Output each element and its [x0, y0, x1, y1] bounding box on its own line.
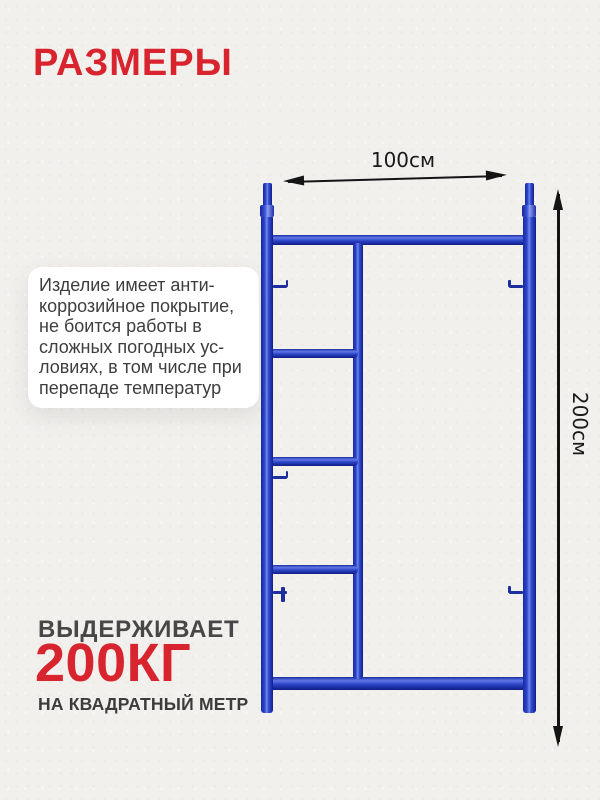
capacity-value: 200КГ	[35, 634, 191, 692]
frame-rung	[270, 565, 358, 574]
description-text: Изделие имеет анти- коррозийное покрытие…	[39, 275, 255, 398]
frame-hook	[273, 471, 289, 480]
frame-hook	[273, 280, 289, 289]
description-line: ловиях, в том числе при	[39, 357, 255, 378]
height-dimension-label: 200см	[572, 374, 592, 474]
description-line: сложных погодных ус-	[39, 337, 255, 358]
width-arrow-icon	[283, 166, 507, 191]
description-line: перепаде температур	[39, 378, 255, 399]
frame-left-post	[261, 215, 273, 713]
frame-hook	[507, 586, 523, 595]
description-line: коррозийное покрытие,	[39, 296, 255, 317]
frame-top-bar	[267, 235, 530, 245]
description-line: не боится работы в	[39, 316, 255, 337]
frame-rung	[270, 349, 358, 358]
description-card: Изделие имеет анти- коррозийное покрытие…	[28, 267, 259, 408]
frame-flag-pin	[273, 586, 290, 603]
height-arrow-icon	[549, 189, 568, 747]
capacity-unit: НА КВАДРАТНЫЙ МЕТР	[38, 694, 248, 715]
frame-hook	[507, 280, 523, 289]
frame-rung	[270, 457, 358, 466]
frame-right-post	[523, 215, 536, 713]
description-line: Изделие имеет анти-	[39, 275, 255, 296]
page-title: РАЗМЕРЫ	[33, 44, 233, 82]
frame-bottom-bar	[267, 677, 530, 690]
frame-right-coupling-sleeve	[522, 205, 536, 217]
frame-left-coupling-sleeve	[260, 205, 274, 217]
